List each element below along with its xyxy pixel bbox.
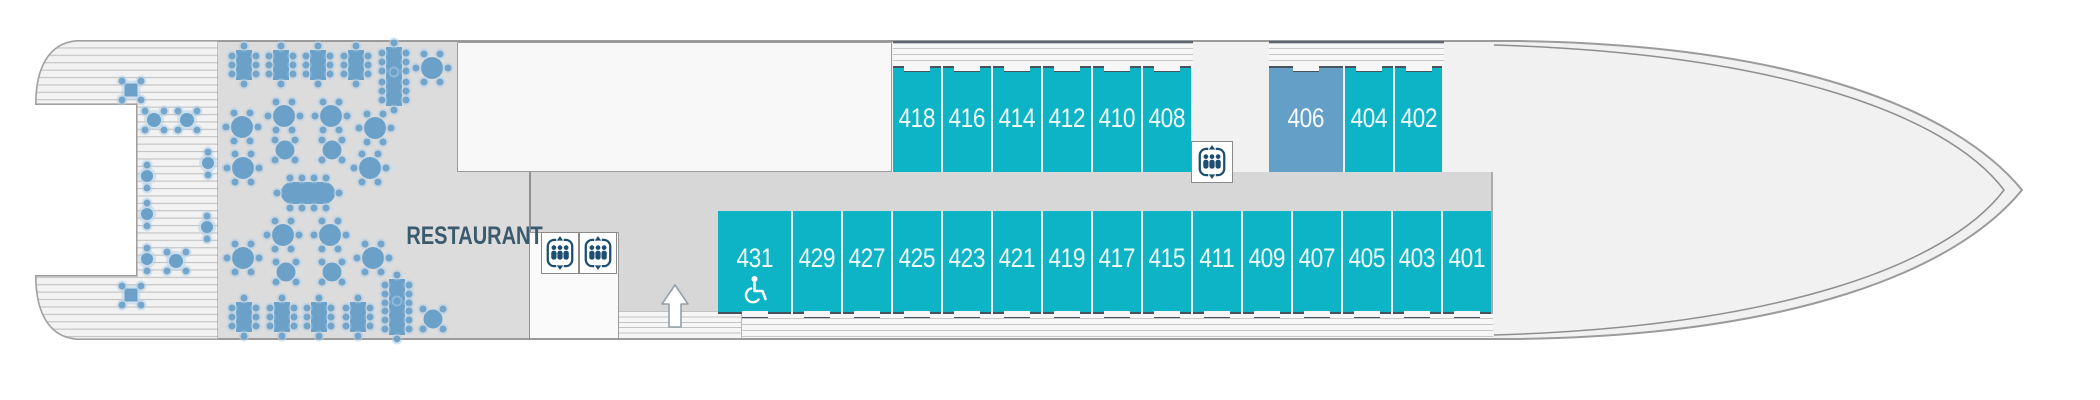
- elevator-box: [1191, 141, 1233, 183]
- elevator-icons: [0, 0, 2100, 400]
- restaurant-label: RESTAURANT: [406, 222, 505, 251]
- elevator-box: [579, 232, 617, 274]
- stairs-up-arrow-icon: [661, 284, 689, 328]
- deck-plan: 418416414412410408406404402 431 42942742…: [0, 0, 2100, 400]
- elevator-icon: [582, 234, 614, 272]
- elevator-box: [541, 232, 579, 274]
- elevator-icon: [544, 234, 576, 272]
- elevator-icon: [1196, 143, 1228, 181]
